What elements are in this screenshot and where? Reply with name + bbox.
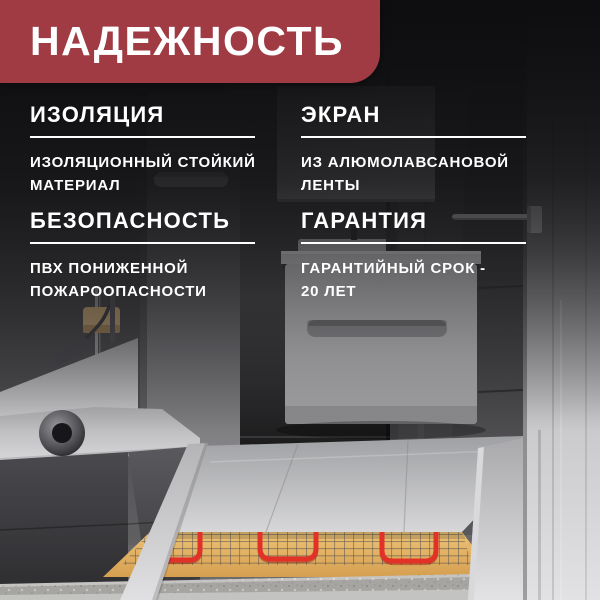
- description-line: ЛЕНТЫ: [301, 174, 566, 197]
- feature-description: ИЗОЛЯЦИОННЫЙ СТОЙКИЙ МАТЕРИАЛ: [30, 151, 285, 197]
- feature-insulation: ИЗОЛЯЦИЯ ИЗОЛЯЦИОННЫЙ СТОЙКИЙ МАТЕРИАЛ: [30, 103, 285, 197]
- banner-title: НАДЕЖНОСТЬ: [0, 21, 344, 62]
- promo-card: НАДЕЖНОСТЬ ИЗОЛЯЦИЯ ИЗОЛЯЦИОННЫЙ СТОЙКИЙ…: [0, 0, 600, 600]
- tub-apron: [0, 452, 128, 600]
- feature-safety: БЕЗОПАСНОСТЬ ПВХ ПОНИЖЕННОЙ ПОЖАРООПАСНО…: [30, 209, 295, 303]
- feature-title: БЕЗОПАСНОСТЬ: [30, 209, 295, 233]
- description-line: ПВХ ПОНИЖЕННОЙ: [30, 257, 295, 280]
- feature-description: ИЗ АЛЮМОЛАВСАНОВОЙ ЛЕНТЫ: [301, 151, 566, 197]
- feature-title: ИЗОЛЯЦИЯ: [30, 103, 285, 127]
- feature-shield: ЭКРАН ИЗ АЛЮМОЛАВСАНОВОЙ ЛЕНТЫ: [301, 103, 566, 197]
- description-line: ИЗ АЛЮМОЛАВСАНОВОЙ: [301, 151, 566, 174]
- feature-description: ПВХ ПОНИЖЕННОЙ ПОЖАРООПАСНОСТИ: [30, 257, 295, 303]
- feature-title: ЭКРАН: [301, 103, 566, 127]
- feature-description: ГАРАНТИЙНЫЙ СРОК - 20 ЛЕТ: [301, 257, 566, 303]
- feature-underline: [301, 242, 526, 244]
- description-line: 20 ЛЕТ: [301, 280, 566, 303]
- description-line: МАТЕРИАЛ: [30, 174, 285, 197]
- feature-underline: [301, 136, 526, 138]
- description-line: ГАРАНТИЙНЫЙ СРОК -: [301, 257, 566, 280]
- description-line: ПОЖАРООПАСНОСТИ: [30, 280, 295, 303]
- feature-underline: [30, 242, 255, 244]
- feature-underline: [30, 136, 255, 138]
- description-line: ИЗОЛЯЦИОННЫЙ СТОЙКИЙ: [30, 151, 285, 174]
- feature-title: ГАРАНТИЯ: [301, 209, 566, 233]
- tile-floor: [150, 436, 523, 532]
- reliability-banner: НАДЕЖНОСТЬ: [0, 0, 380, 83]
- feature-warranty: ГАРАНТИЯ ГАРАНТИЙНЫЙ СРОК - 20 ЛЕТ: [301, 209, 566, 303]
